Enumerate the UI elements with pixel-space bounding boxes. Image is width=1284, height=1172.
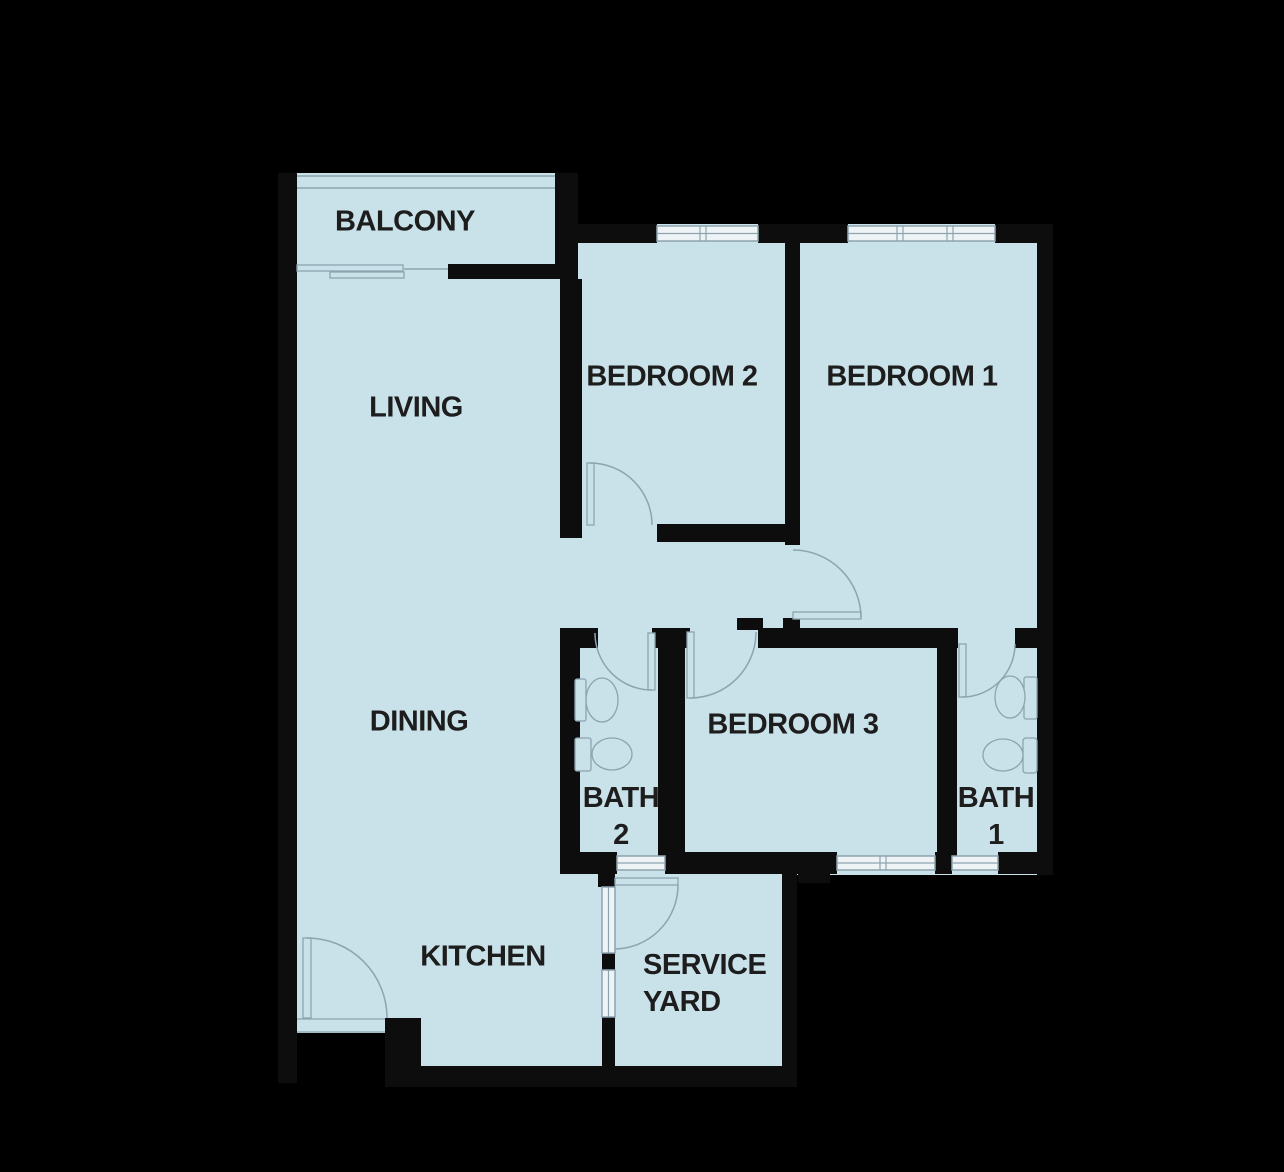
bedroom-3-window (837, 856, 935, 870)
bath-2-sink-icon (575, 678, 618, 722)
wall-segment (602, 1017, 615, 1070)
wall-segment (785, 243, 800, 545)
wall-segment (448, 264, 578, 279)
floor-plan-drawing (0, 0, 1284, 1172)
wall-segment (998, 852, 1037, 874)
wall-segment (935, 852, 952, 874)
room-label-service-yard: SERVICE YARD (643, 947, 766, 1021)
bath-1-window (952, 856, 998, 870)
wall-segment (421, 1066, 795, 1087)
wall-segment (555, 173, 578, 279)
wall-segment (758, 628, 958, 648)
wall-segment (560, 279, 582, 538)
kitchen-service-partition-window (602, 887, 615, 1017)
room-label-bedroom-2: BEDROOM 2 (586, 359, 757, 396)
wall-segment (598, 868, 615, 887)
bath-2-toilet-icon (575, 738, 632, 771)
room-label-bedroom-1: BEDROOM 1 (826, 359, 997, 396)
wall-segment (798, 870, 830, 883)
room-label-kitchen: KITCHEN (420, 939, 545, 976)
wall-segment (657, 524, 785, 542)
bath-1-sink-icon (983, 738, 1037, 773)
bedroom-2-window (657, 226, 758, 241)
room-label-bedroom-3: BEDROOM 3 (707, 707, 878, 744)
room-label-dining: DINING (370, 704, 469, 741)
floor-plan: BALCONY LIVING DINING KITCHEN BEDROOM 2 … (0, 0, 1284, 1172)
wall-segment (937, 648, 957, 870)
wall-segment (758, 224, 848, 243)
room-label-living: LIVING (369, 390, 463, 427)
room-label-bath-2: BATH 2 (583, 780, 659, 854)
wall-segment (1037, 224, 1053, 875)
wall-segment (1015, 628, 1037, 648)
wall-segment (652, 628, 690, 648)
wall-segment (782, 870, 797, 1087)
bath-1-toilet-icon (995, 676, 1037, 719)
entrance-threshold (297, 1018, 385, 1033)
wall-segment (578, 224, 657, 243)
wall-segment (737, 618, 763, 630)
wall-segment (783, 618, 800, 630)
bath-2-window (617, 856, 665, 870)
wall-segment (602, 953, 615, 970)
wall-segment (658, 648, 685, 868)
room-label-balcony: BALCONY (335, 204, 475, 241)
room-label-bath-1: BATH 1 (958, 780, 1034, 854)
wall-segment (385, 1018, 421, 1087)
wall-segment (278, 173, 297, 1083)
bedroom-1-window (848, 226, 995, 241)
